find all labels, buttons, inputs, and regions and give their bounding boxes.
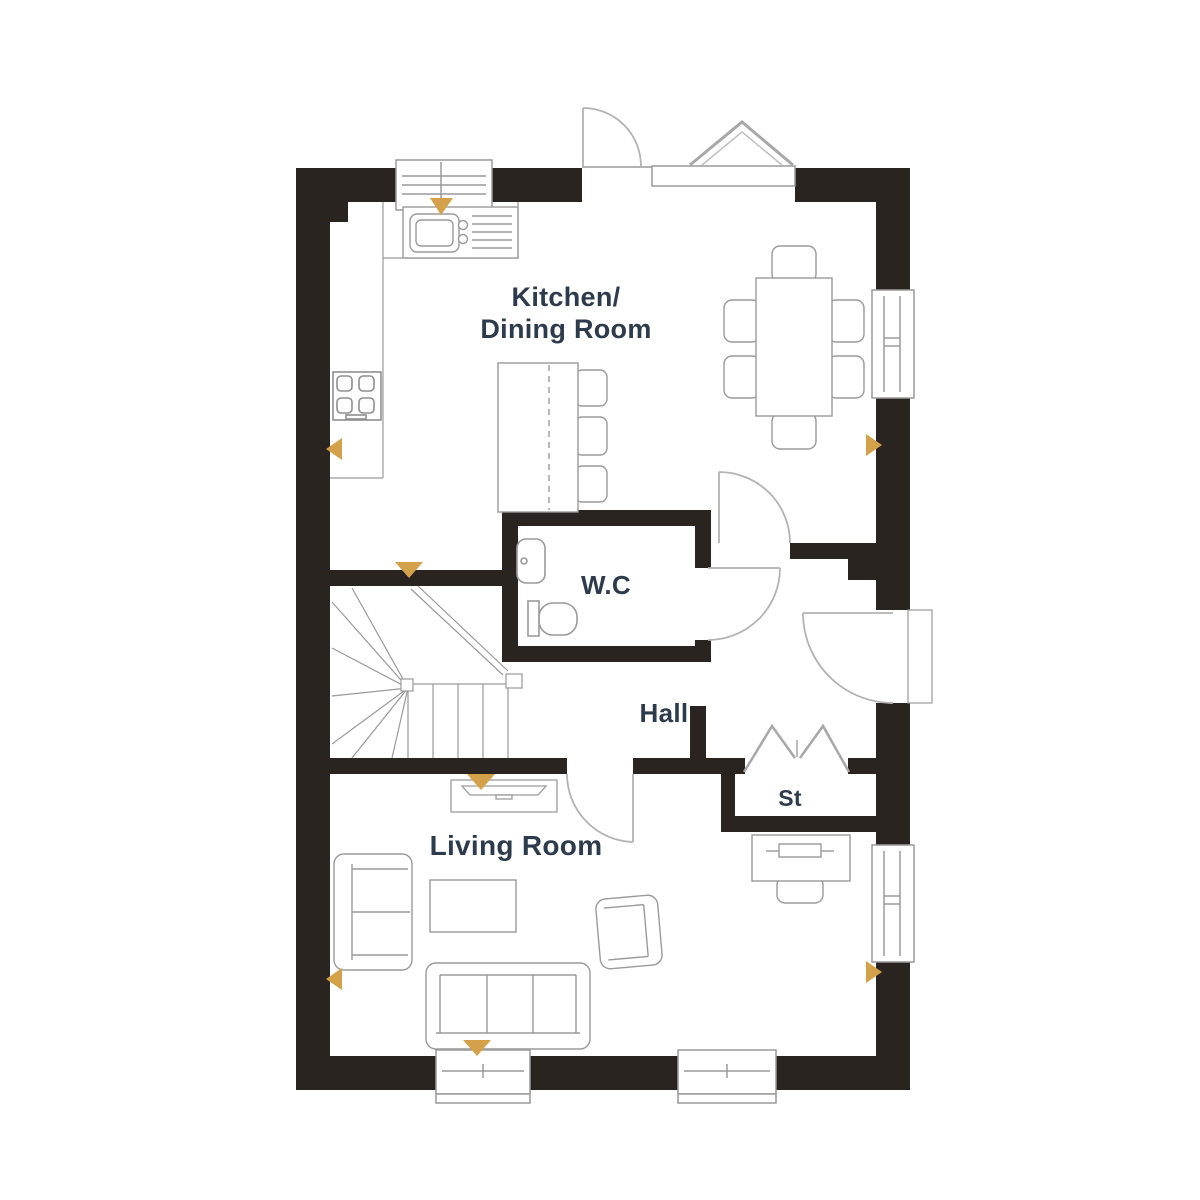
dining-table-6-chairs — [724, 246, 864, 449]
wc-toilet — [528, 601, 577, 636]
armchair — [595, 894, 663, 969]
sofa-2-seat — [334, 854, 412, 970]
coffee-table — [430, 880, 516, 932]
tv-unit — [451, 780, 557, 812]
room-label-wc: W.C — [546, 569, 666, 601]
wc-door — [708, 568, 780, 640]
direction-marker-icon — [866, 434, 882, 456]
direction-marker-icon — [326, 968, 342, 990]
room-label-living: Living Room — [386, 830, 646, 862]
living-window-left — [436, 1050, 530, 1103]
direction-marker-icon — [326, 438, 342, 460]
breakfast-bar-with-stools — [498, 363, 607, 512]
kitchen-sink — [403, 207, 518, 258]
room-label-storage: St — [750, 782, 830, 814]
wc-basin — [517, 539, 545, 583]
storage-bifold-door — [744, 726, 849, 772]
room-label-hall: Hall — [604, 697, 724, 729]
sofa-3-seat — [426, 963, 590, 1049]
direction-marker-icon — [395, 562, 423, 578]
kitchen-label-line2: Dining Room — [480, 314, 651, 344]
direction-marker-icon — [866, 961, 882, 983]
patio-window — [652, 122, 795, 186]
entrance-top-door — [583, 108, 641, 166]
staircase-winder — [332, 586, 522, 758]
front-door — [803, 610, 932, 703]
dining-window — [872, 290, 914, 398]
room-label-kitchen-dining: Kitchen/ Dining Room — [436, 281, 696, 345]
desk-with-chair — [752, 835, 850, 903]
living-side-window — [872, 845, 914, 962]
kitchen-hall-door — [719, 472, 790, 543]
kitchen-label-line1: Kitchen/ — [512, 282, 621, 312]
hob — [333, 372, 381, 420]
living-window-right — [678, 1050, 776, 1103]
floor-plan: Kitchen/ Dining Room W.C Hall St Living … — [0, 0, 1200, 1200]
